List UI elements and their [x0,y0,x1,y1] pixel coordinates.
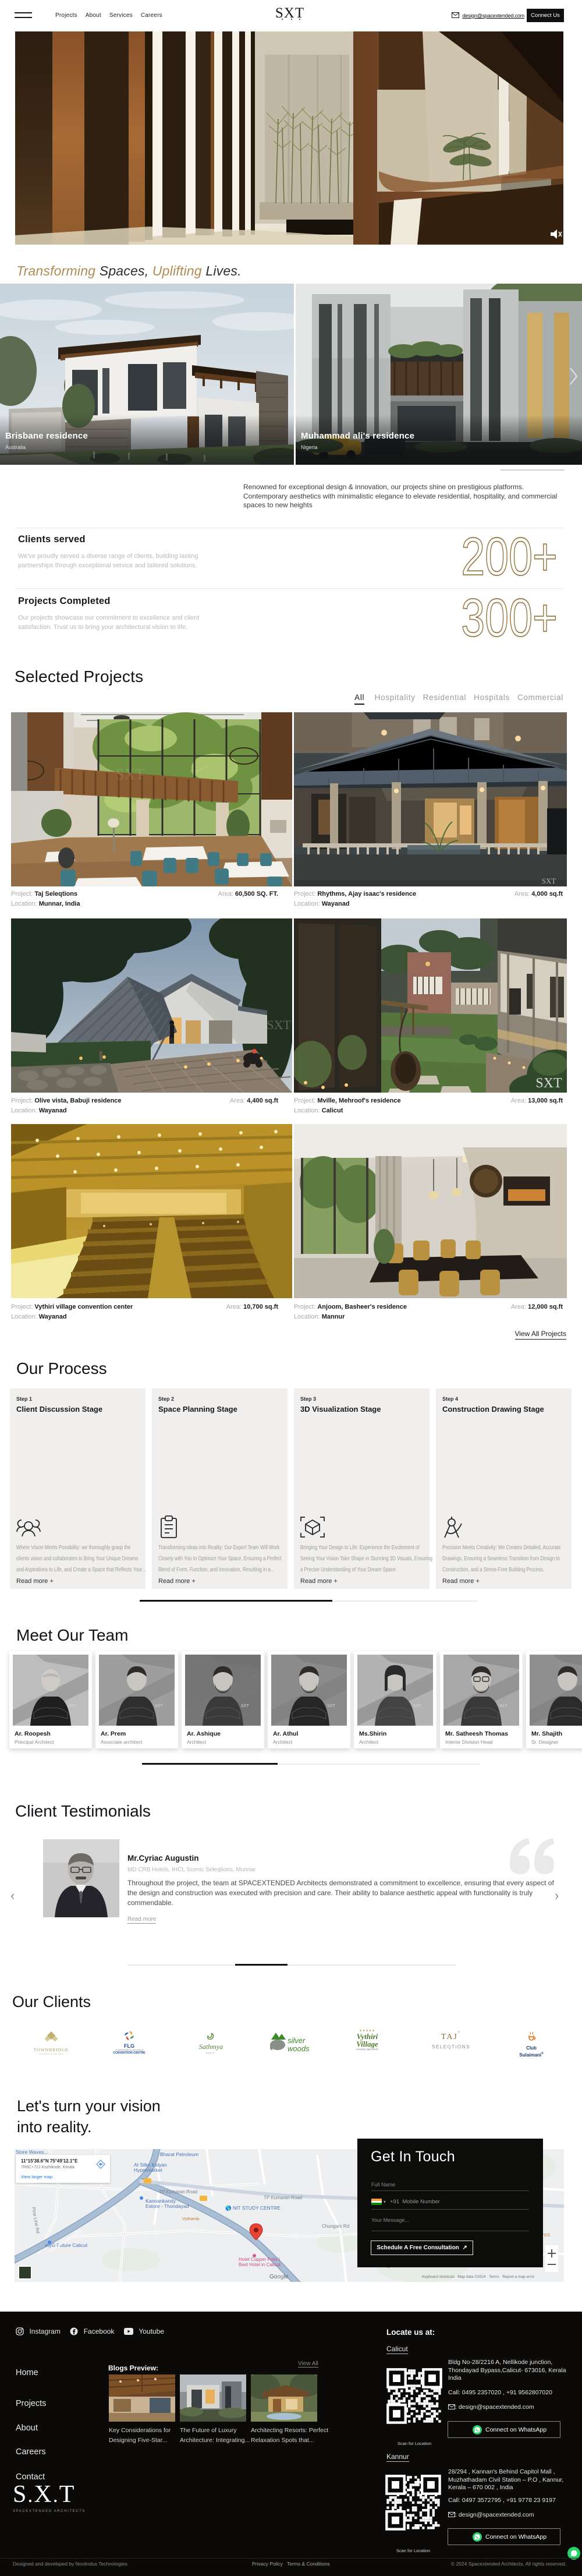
svg-text:TP Kumaran Road: TP Kumaran Road [159,2189,197,2195]
svg-text:Estore - Thondayad: Estore - Thondayad [145,2203,189,2209]
svg-text:Bharat Petroleum: Bharat Petroleum [160,2151,198,2157]
svg-text:Keyboard shortcuts Map data: Keyboard shortcuts Map data ©2024 Terms … [422,2274,535,2279]
svg-text:Hypermarket: Hypermarket [134,2167,162,2173]
svg-text:SXT: SXT [327,1704,335,1708]
svg-text:SXT: SXT [69,1704,77,1708]
svg-text:SXT: SXT [499,1704,508,1708]
svg-text:Chungam Rd: Chungam Rd [322,2224,349,2229]
svg-text:SXT: SXT [241,1704,249,1708]
svg-text:SXT: SXT [542,877,556,885]
svg-text:SXT: SXT [413,1704,421,1708]
svg-text:Store Waves...: Store Waves... [16,2149,48,2155]
svg-text:woods: woods [288,2044,310,2053]
svg-text:SXT: SXT [116,766,144,783]
svg-text:TP Kumaran Road: TP Kumaran Road [264,2195,302,2200]
svg-text:SXT: SXT [267,1017,291,1032]
svg-text:Hotel Copper Folia |: Hotel Copper Folia | [239,2257,280,2262]
svg-text:SXT: SXT [155,1704,163,1708]
svg-text:SXT: SXT [535,1076,562,1091]
svg-text:Best Hotel in Calicut: Best Hotel in Calicut [239,2262,281,2267]
svg-text:Vythamb: Vythamb [182,2216,199,2221]
svg-text:silver: silver [288,2036,306,2045]
svg-text:Google: Google [269,2274,289,2280]
svg-text:🌎 NIT STUDY CENTRE: 🌎 NIT STUDY CENTRE [225,2205,281,2211]
